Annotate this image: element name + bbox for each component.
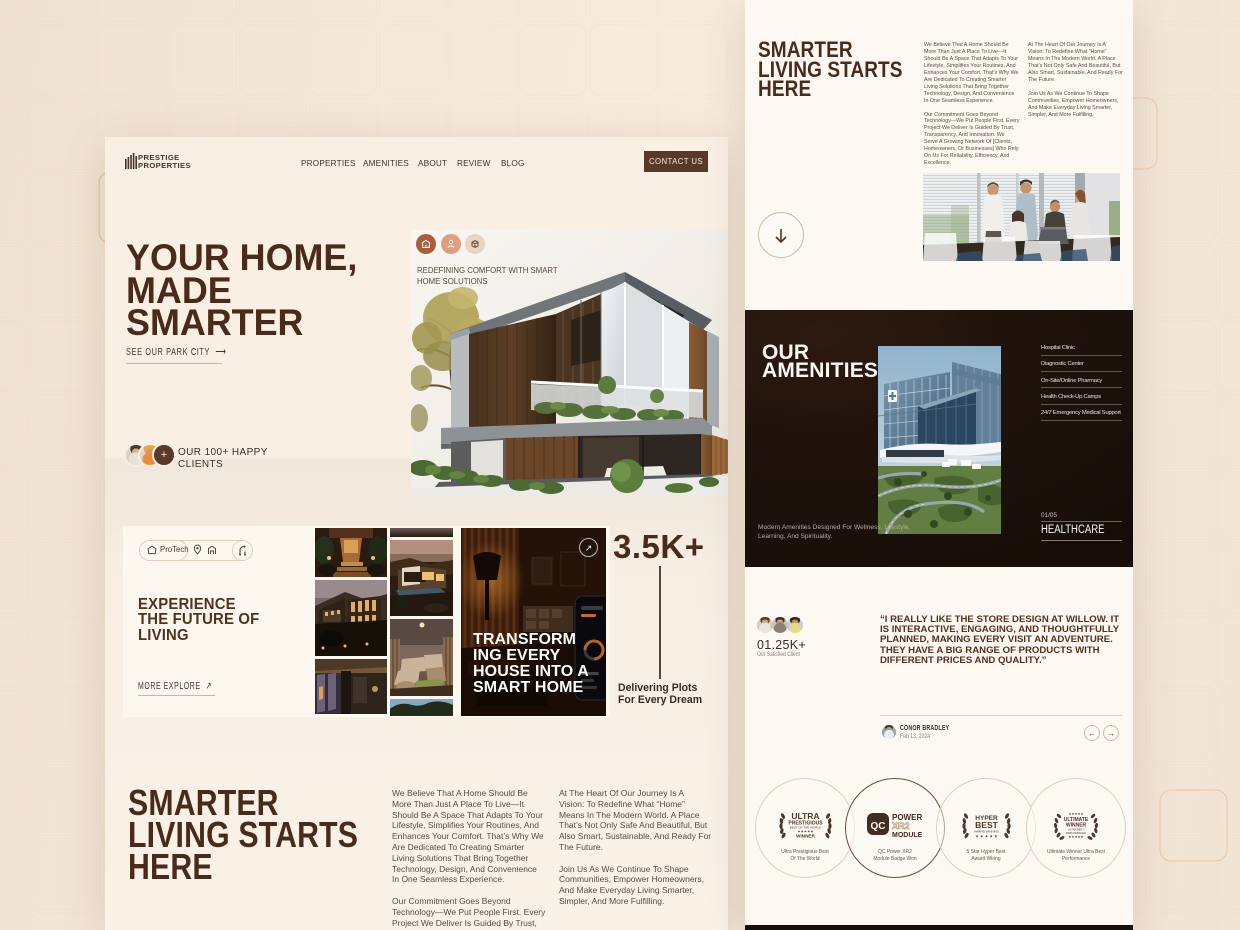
- svg-text:XR2: XR2: [892, 821, 910, 831]
- svg-text:★ ★ ★ ★ ★: ★ ★ ★ ★ ★: [975, 834, 998, 839]
- svg-text:WINNER: WINNER: [796, 834, 815, 839]
- svg-text:ULTRA: ULTRA: [791, 811, 819, 821]
- svg-text:★★★★★: ★★★★★: [1068, 812, 1083, 816]
- svg-text:★★★★★: ★★★★★: [1068, 835, 1083, 839]
- svg-text:MODULE: MODULE: [892, 832, 923, 838]
- svg-text:BEST: BEST: [975, 820, 998, 830]
- svg-text:QC: QC: [871, 821, 886, 832]
